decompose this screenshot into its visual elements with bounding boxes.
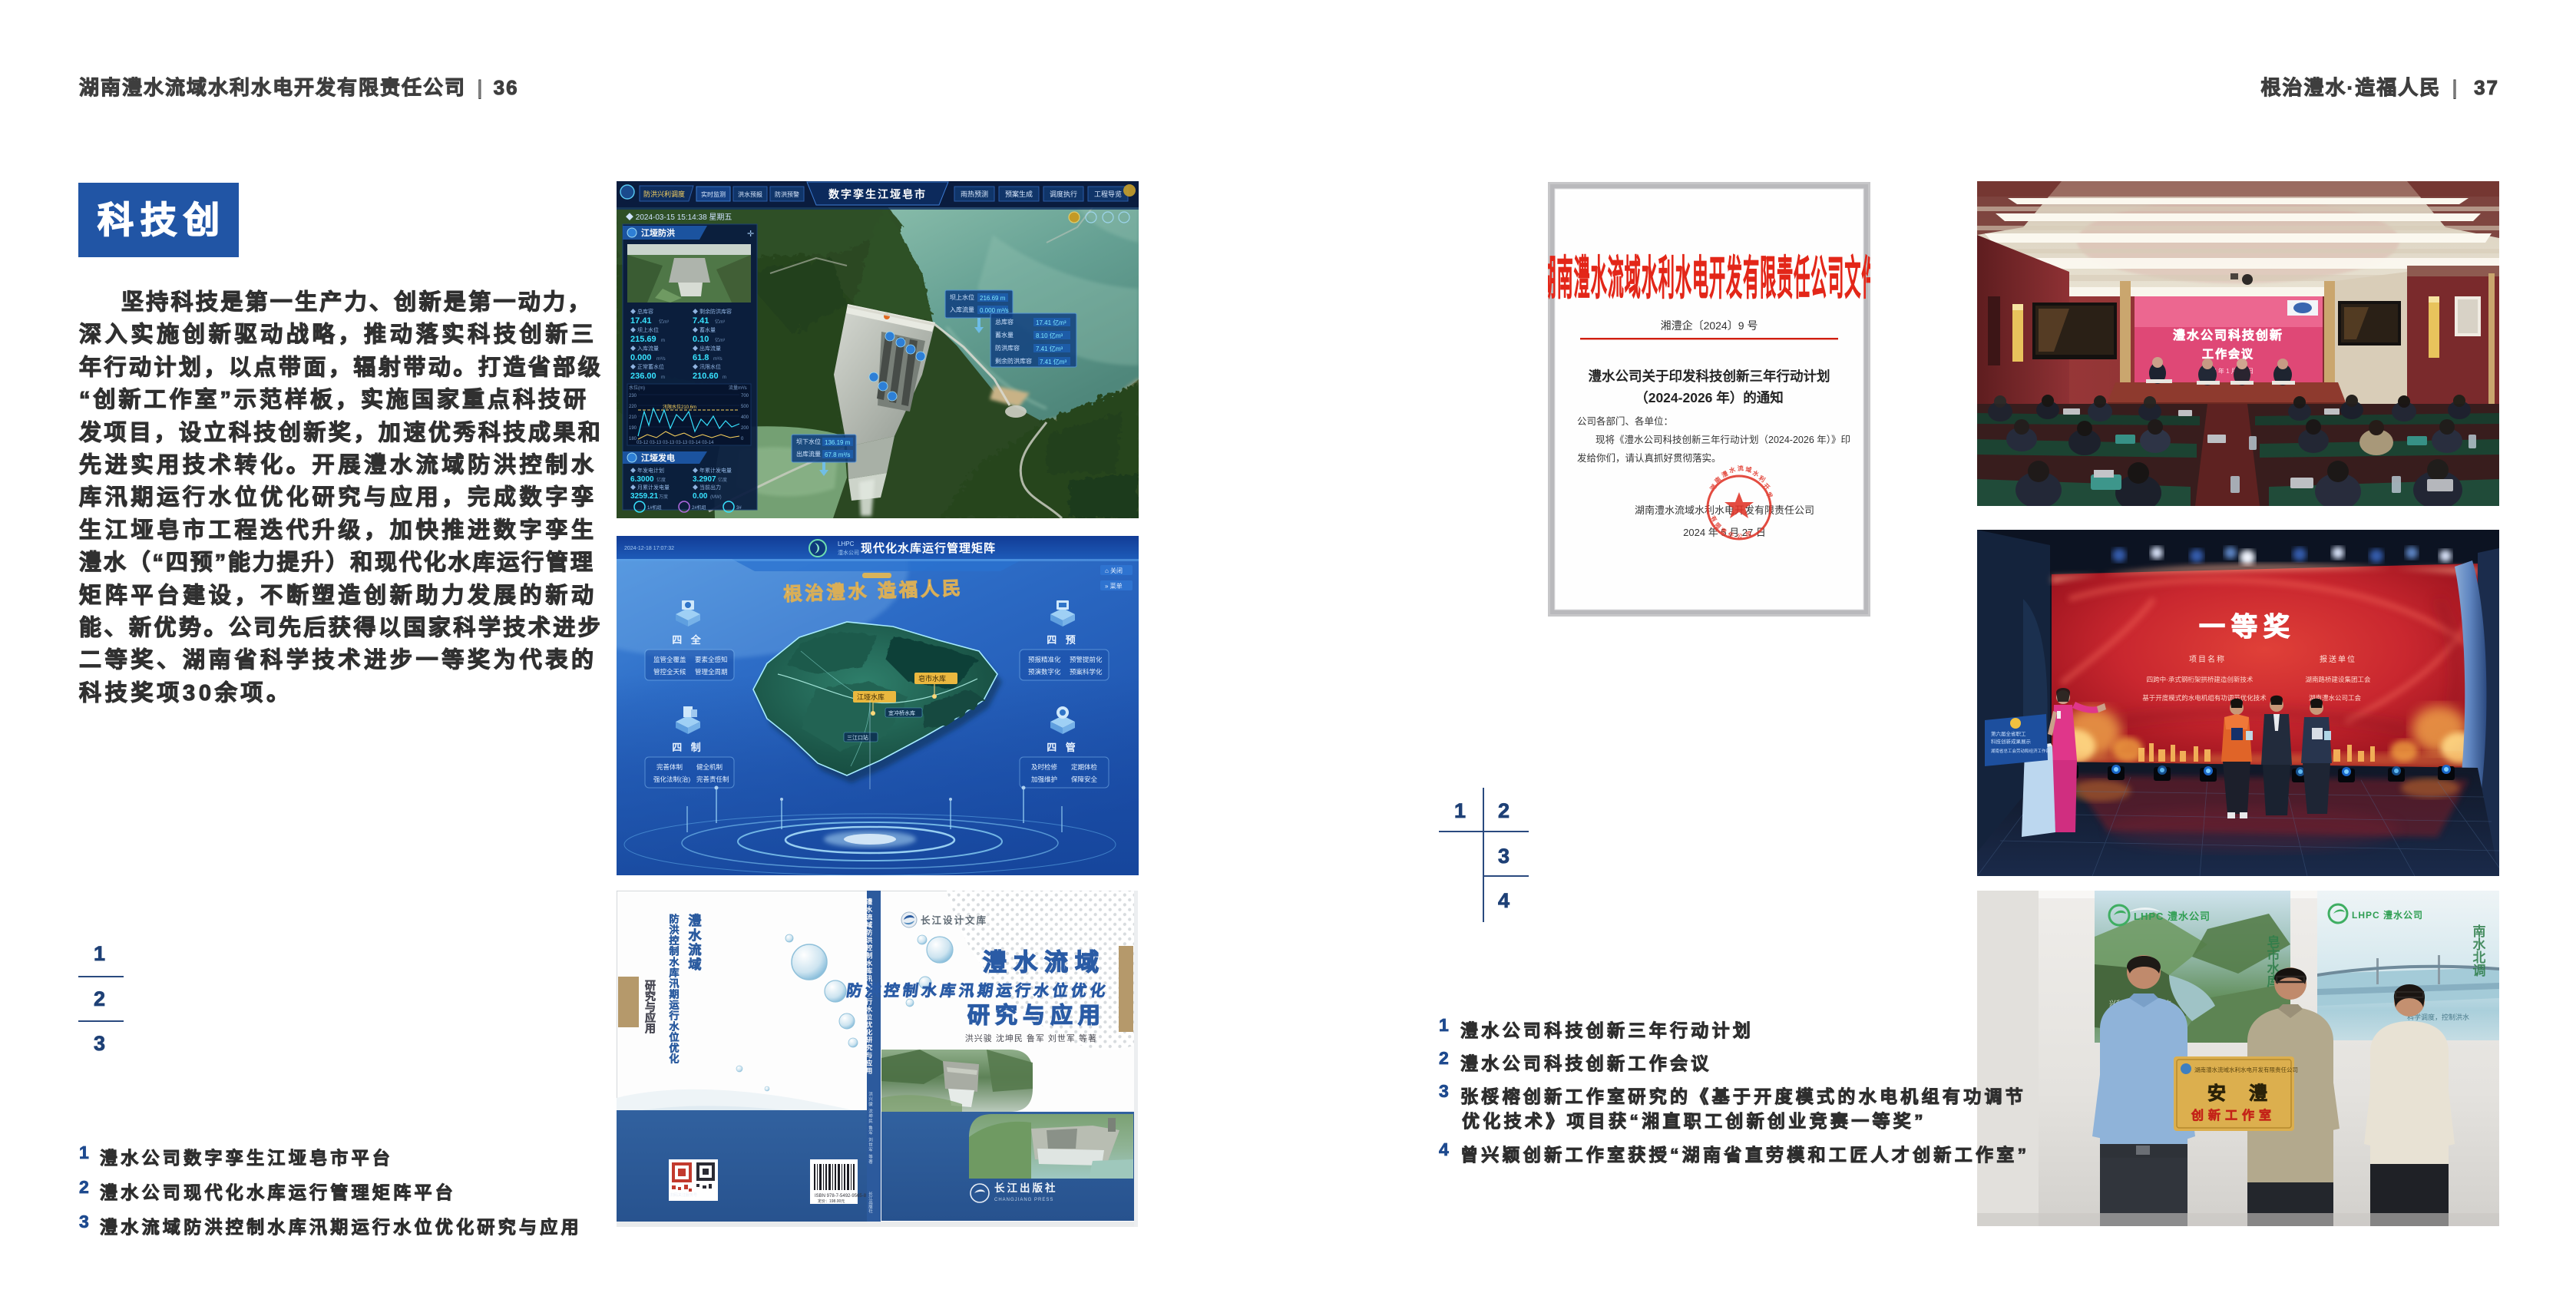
svg-text:◆ 正常蓄水位: ◆ 正常蓄水位 — [630, 363, 664, 370]
svg-text:防洪预警: 防洪预警 — [775, 190, 799, 198]
svg-text:报送单位: 报送单位 — [2320, 654, 2356, 664]
svg-text:工作会议: 工作会议 — [2202, 347, 2254, 361]
svg-text:230: 230 — [629, 394, 637, 398]
svg-text:防洪兴利调度: 防洪兴利调度 — [643, 190, 685, 198]
svg-text:皂市水库: 皂市水库 — [918, 674, 946, 683]
svg-text:7.41 亿m³: 7.41 亿m³ — [1040, 358, 1066, 365]
svg-text:1#机组: 1#机组 — [647, 504, 662, 511]
svg-text:防洪控制水库汛期运行水位优化: 防洪控制水库汛期运行水位优化 — [845, 981, 1110, 1000]
svg-text:汛限水位210.6m: 汛限水位210.6m — [663, 404, 696, 410]
svg-text:215.69: 215.69 — [630, 335, 656, 344]
svg-text:剩余防洪库容: 剩余防洪库容 — [995, 357, 1032, 365]
svg-text:亿度: 亿度 — [656, 477, 666, 483]
svg-text:湖南澧水流域水利水电开发有限责任公司: 湖南澧水流域水利水电开发有限责任公司 — [1635, 504, 1814, 516]
svg-text:定价：198.00元: 定价：198.00元 — [818, 1199, 845, 1204]
svg-text:防洪控制水库汛期运行水位优化: 防洪控制水库汛期运行水位优化 — [668, 913, 680, 1064]
svg-text:澧水公司科技创新: 澧水公司科技创新 — [2173, 328, 2283, 342]
svg-text:管理全周期: 管理全周期 — [695, 668, 728, 676]
svg-text:亿度: 亿度 — [718, 477, 727, 483]
svg-text:四 管: 四 管 — [1047, 742, 1079, 753]
svg-text:61.8: 61.8 — [693, 353, 709, 362]
svg-text:总库容: 总库容 — [995, 318, 1014, 326]
svg-text:67.8 m³/s: 67.8 m³/s — [825, 451, 850, 458]
svg-text:创新工作室: 创新工作室 — [2191, 1108, 2276, 1122]
svg-text:220: 220 — [629, 405, 637, 409]
svg-text:宜冲桥水库: 宜冲桥水库 — [888, 709, 915, 716]
svg-text:0.00: 0.00 — [693, 492, 708, 501]
svg-text:17.41 亿m³: 17.41 亿m³ — [1036, 319, 1066, 326]
svg-text:LHPC 澧水公司: LHPC 澧水公司 — [2352, 909, 2423, 921]
svg-text:m³/s: m³/s — [656, 357, 666, 362]
svg-text:（2024-2026 年）的通知: （2024-2026 年）的通知 — [1635, 390, 1784, 405]
svg-text:◆ 剩余防洪库容: ◆ 剩余防洪库容 — [693, 308, 732, 315]
svg-text:预演数字化: 预演数字化 — [1028, 668, 1061, 676]
svg-text:03-12 03-13 03-13 03-13 03: 03-12 03-13 03-13 03-13 03-14 03-14 — [637, 441, 714, 445]
svg-text:湖南澧水流域水利水电开发有限责任公司: 湖南澧水流域水利水电开发有限责任公司 — [2194, 1066, 2298, 1073]
svg-text:预案生成: 预案生成 — [1005, 190, 1033, 198]
svg-text:3.2907: 3.2907 — [693, 475, 716, 484]
svg-text:江垭水库: 江垭水库 — [857, 693, 885, 701]
svg-text:南水北调: 南水北调 — [2471, 924, 2486, 977]
svg-text:洪兴骏 沈坤民 鲁军 刘世军 等著: 洪兴骏 沈坤民 鲁军 刘世军 等著 — [965, 1033, 1097, 1043]
svg-text:四跨中·承式钢桁架拱桥建造创新技术: 四跨中·承式钢桁架拱桥建造创新技术 — [2147, 676, 2254, 683]
svg-text:四 预: 四 预 — [1047, 634, 1079, 646]
svg-text:现将《澧水公司科技创新三年行动计划（2024-2026 年）: 现将《澧水公司科技创新三年行动计划（2024-2026 年）》印 — [1596, 434, 1850, 445]
svg-text:190: 190 — [629, 426, 637, 431]
svg-text:长江出版社: 长江出版社 — [868, 1191, 873, 1214]
svg-text:监管全覆盖: 监管全覆盖 — [653, 656, 686, 663]
svg-text:安澧: 安澧 — [2207, 1083, 2290, 1104]
svg-text:200: 200 — [741, 426, 749, 431]
svg-text:发给你们，请认真抓好贯彻落实。: 发给你们，请认真抓好贯彻落实。 — [1577, 452, 1721, 464]
svg-text:要素全感知: 要素全感知 — [695, 656, 728, 663]
svg-text:亿m³: 亿m³ — [715, 319, 725, 325]
svg-text:洪兴骏 沈坤民 鲁军 刘世军 等著: 洪兴骏 沈坤民 鲁军 刘世军 等著 — [868, 1091, 873, 1165]
svg-text:加强维护: 加强维护 — [1031, 775, 1057, 783]
svg-text:湖南澧水流域水利水电开发有限责任公司文件: 湖南澧水流域水利水电开发有限责任公司文件 — [1548, 252, 1870, 304]
svg-text:项目名称: 项目名称 — [2189, 654, 2226, 664]
svg-text:2024-12-18 17:07:32: 2024-12-18 17:07:32 — [624, 546, 674, 551]
svg-text:CHANGJIANG PRESS: CHANGJIANG PRESS — [994, 1198, 1053, 1202]
svg-text:澧水公司关于印发科技创新三年行动计划: 澧水公司关于印发科技创新三年行动计划 — [1589, 369, 1830, 384]
svg-text:三江口站: 三江口站 — [847, 734, 868, 741]
svg-text:坝上水位: 坝上水位 — [950, 293, 974, 301]
svg-text:◆ 2024-03-15 15:14:38 星期五: ◆ 2024-03-15 15:14:38 星期五 — [626, 213, 732, 222]
svg-text:亿m³: 亿m³ — [659, 319, 669, 325]
svg-text:长江设计文库: 长江设计文库 — [921, 914, 987, 926]
svg-text:雨热预测: 雨热预测 — [961, 190, 988, 198]
svg-text:◆ 坝上水位: ◆ 坝上水位 — [630, 326, 659, 333]
svg-text:7.41 亿m³: 7.41 亿m³ — [1036, 345, 1063, 352]
svg-text:江垭防洪: 江垭防洪 — [641, 227, 675, 238]
svg-text:水位(m): 水位(m) — [629, 385, 645, 391]
svg-text:(MW): (MW) — [710, 495, 722, 500]
svg-text:3259.21: 3259.21 — [630, 492, 659, 501]
svg-text:蓄水量: 蓄水量 — [995, 331, 1014, 339]
svg-text:◆ 年累计发电量: ◆ 年累计发电量 — [693, 467, 732, 474]
svg-text:基于开度模式的水电机组有功调节优化技术: 基于开度模式的水电机组有功调节优化技术 — [2142, 694, 2267, 702]
svg-text:流量m³/s: 流量m³/s — [729, 385, 747, 391]
svg-text:完善责任制: 完善责任制 — [696, 775, 729, 783]
svg-text:17.41: 17.41 — [630, 316, 652, 326]
svg-text:◆ 入库流量: ◆ 入库流量 — [630, 345, 659, 352]
svg-text:科技创新成果展示: 科技创新成果展示 — [1991, 738, 2032, 745]
svg-text:◆ 月累计发电量: ◆ 月累计发电量 — [630, 484, 670, 491]
svg-text:域: 域 — [1745, 465, 1752, 474]
svg-text:◆ 出库流量: ◆ 出库流量 — [693, 345, 721, 352]
svg-text:澧水流域: 澧水流域 — [983, 949, 1106, 976]
svg-text:定期体检: 定期体检 — [1071, 763, 1098, 771]
svg-text:四 全: 四 全 — [672, 634, 704, 646]
svg-text:出库流量: 出库流量 — [796, 450, 821, 458]
svg-text:澧水公司: 澧水公司 — [838, 549, 859, 556]
svg-text:⌂ 关闭: ⌂ 关闭 — [1105, 567, 1123, 574]
svg-text:数字孪生江垭皂市: 数字孪生江垭皂市 — [828, 188, 927, 200]
svg-text:LHPC: LHPC — [838, 541, 855, 547]
svg-text:预报精准化: 预报精准化 — [1028, 656, 1061, 663]
svg-text:400: 400 — [741, 415, 749, 420]
svg-text:m: m — [661, 339, 665, 343]
svg-text:预案科学化: 预案科学化 — [1070, 668, 1103, 676]
svg-text:◆ 总库容: ◆ 总库容 — [630, 308, 653, 315]
svg-text:湖南路桥建设集团工会: 湖南路桥建设集团工会 — [2305, 676, 2371, 683]
svg-text:ISBN 978-7-5492-9565-8: ISBN 978-7-5492-9565-8 — [815, 1194, 867, 1199]
svg-text:亿m³: 亿m³ — [715, 337, 725, 343]
svg-text:强化法制(治): 强化法制(治) — [653, 775, 690, 783]
svg-text:» 菜单: » 菜单 — [1105, 582, 1123, 590]
svg-text:一等奖: 一等奖 — [2199, 613, 2296, 642]
svg-text:7.41: 7.41 — [693, 316, 709, 326]
svg-text:2#机组: 2#机组 — [692, 504, 706, 511]
svg-text:◆ 年发电计划: ◆ 年发电计划 — [630, 467, 664, 474]
svg-text:澧水流域: 澧水流域 — [686, 913, 702, 972]
svg-text:LHPC 澧水公司: LHPC 澧水公司 — [2134, 911, 2211, 922]
svg-text:四 制: 四 制 — [672, 742, 704, 753]
svg-text:8.10 亿m³: 8.10 亿m³ — [1036, 332, 1063, 339]
svg-text:公: 公 — [1737, 533, 1743, 540]
svg-text:江垭发电: 江垭发电 — [641, 452, 675, 463]
svg-text:✛: ✛ — [747, 230, 754, 239]
svg-text:工程导览: 工程导览 — [1094, 190, 1122, 198]
svg-text:700: 700 — [741, 394, 749, 398]
svg-text:管控全天候: 管控全天候 — [653, 668, 686, 676]
svg-text:6.3000: 6.3000 — [630, 475, 654, 484]
svg-text:坝下水位: 坝下水位 — [796, 438, 821, 445]
svg-text:流: 流 — [1737, 464, 1744, 472]
svg-text:3#: 3# — [736, 506, 742, 511]
svg-text:预警提前化: 预警提前化 — [1070, 656, 1103, 663]
svg-text:136.19 m: 136.19 m — [825, 439, 851, 446]
svg-text:实时监测: 实时监测 — [701, 190, 726, 198]
svg-text:入库流量: 入库流量 — [950, 306, 974, 313]
svg-text:湖南省总工会劳动和经济工作部: 湖南省总工会劳动和经济工作部 — [1991, 748, 2051, 754]
svg-text:210.60: 210.60 — [693, 372, 719, 381]
svg-text:第六届全省职工: 第六届全省职工 — [1991, 730, 2026, 737]
svg-text:500: 500 — [741, 405, 749, 409]
svg-text:健全机制: 健全机制 — [696, 763, 723, 771]
svg-text:万度: 万度 — [659, 494, 668, 500]
svg-text:m³/s: m³/s — [713, 357, 723, 362]
svg-text:◆ 蓄水量: ◆ 蓄水量 — [693, 326, 716, 333]
svg-text:及时检修: 及时检修 — [1031, 763, 1058, 771]
svg-text:m: m — [661, 375, 665, 380]
svg-text:湘澧企〔2024〕9 号: 湘澧企〔2024〕9 号 — [1661, 319, 1758, 332]
svg-text:◆ 当前出力: ◆ 当前出力 — [693, 484, 721, 491]
svg-text:0.10: 0.10 — [693, 335, 709, 344]
svg-text:0.000: 0.000 — [630, 353, 652, 362]
svg-text:完善体制: 完善体制 — [656, 763, 683, 771]
svg-text:◆ 汛限水位: ◆ 汛限水位 — [693, 363, 721, 370]
svg-text:研究与应用: 研究与应用 — [644, 980, 656, 1034]
svg-text:公司各部门、各单位：: 公司各部门、各单位： — [1577, 415, 1673, 427]
svg-text:洪水预报: 洪水预报 — [738, 190, 762, 198]
svg-text:调度执行: 调度执行 — [1050, 190, 1077, 198]
svg-text:研究与应用: 研究与应用 — [967, 1002, 1106, 1028]
svg-text:210: 210 — [629, 415, 637, 420]
svg-text:保障安全: 保障安全 — [1071, 775, 1098, 783]
svg-text:m: m — [723, 375, 726, 380]
svg-text:236.00: 236.00 — [630, 372, 656, 381]
svg-text:防洪库容: 防洪库容 — [995, 344, 1020, 352]
svg-text:216.69 m: 216.69 m — [980, 295, 1006, 302]
svg-text:现代化水库运行管理矩阵: 现代化水库运行管理矩阵 — [861, 541, 996, 555]
svg-text:长江出版社: 长江出版社 — [994, 1182, 1058, 1194]
svg-text:扫码关注服务号: 扫码关注服务号 — [670, 1192, 697, 1198]
